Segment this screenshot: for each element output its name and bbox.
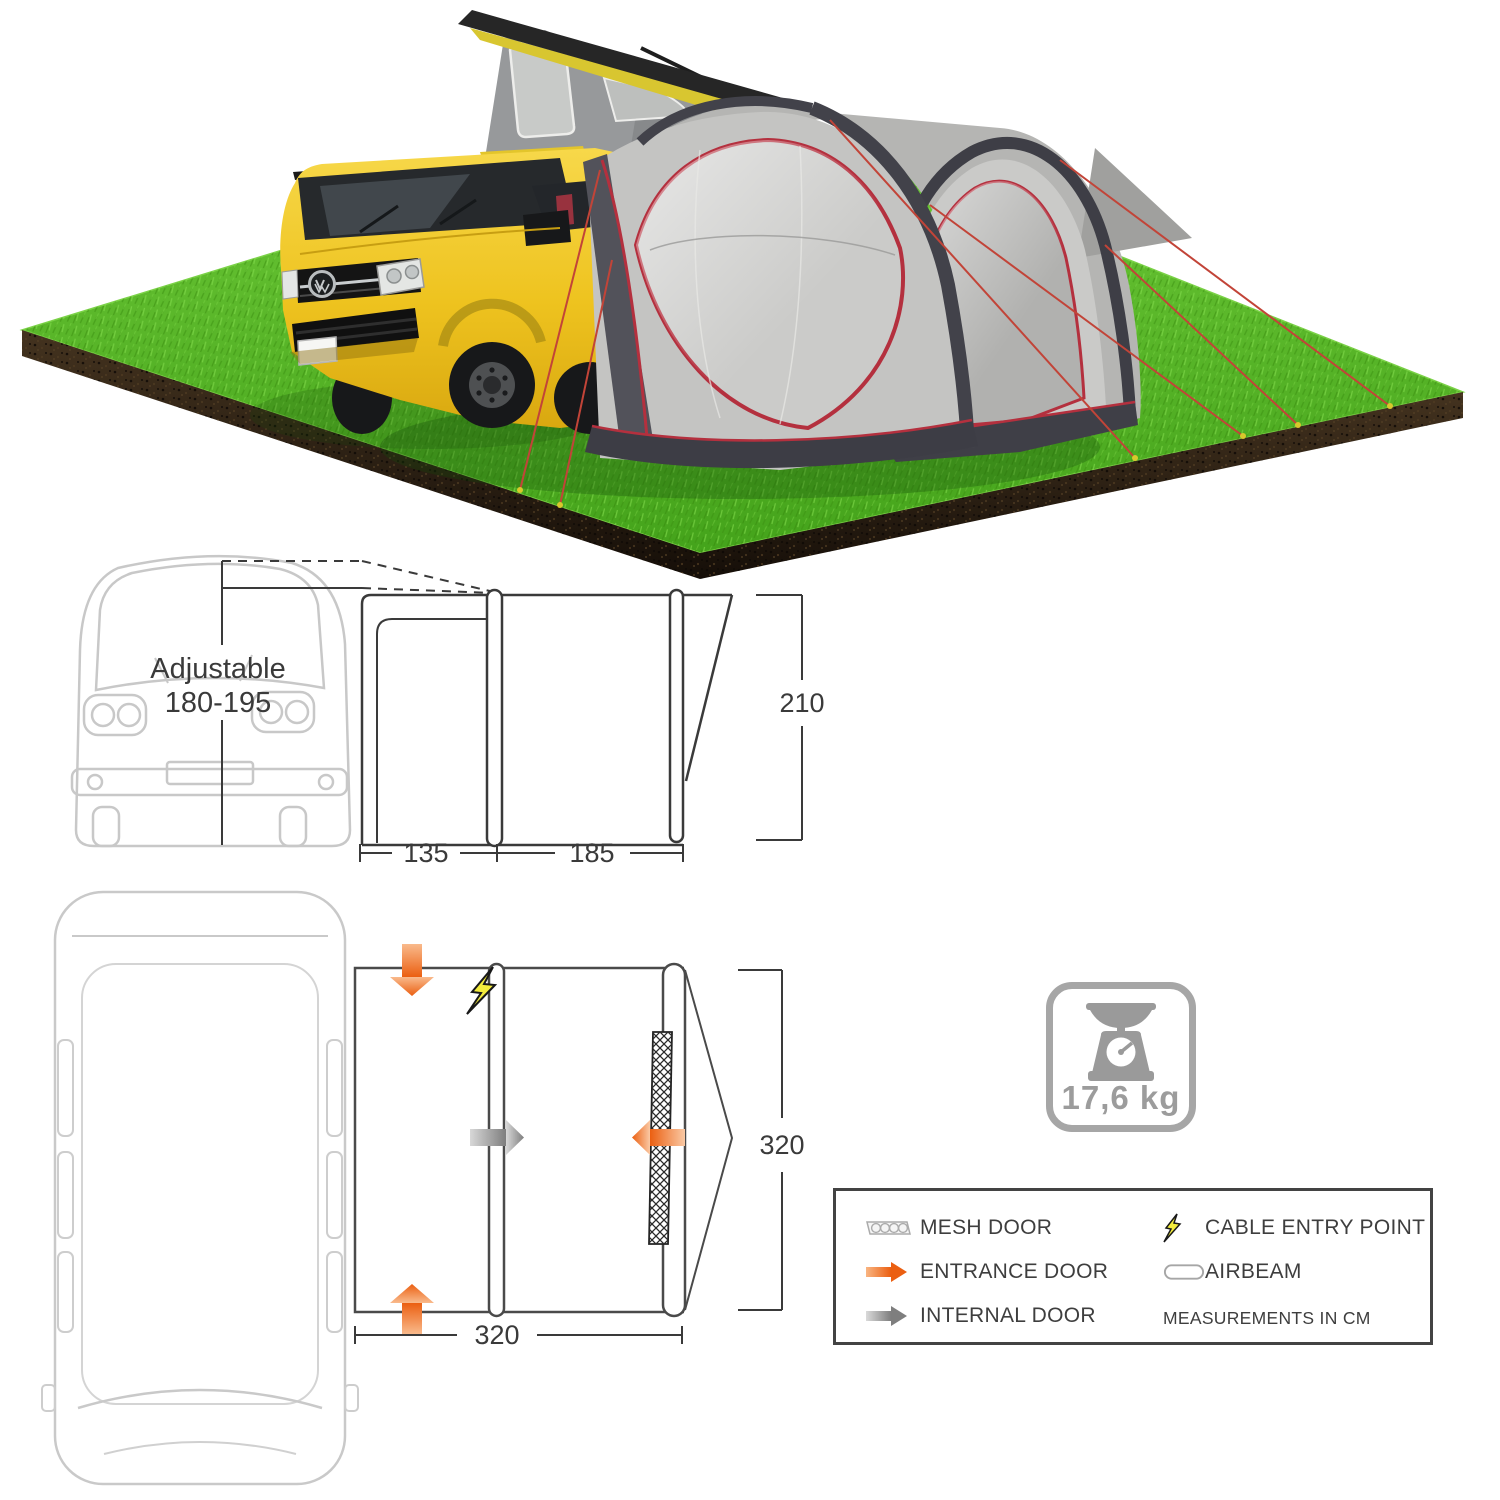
legend-item-cable-entry: CABLE ENTRY POINT — [1163, 1213, 1425, 1243]
airbeam-tube-right — [670, 590, 683, 842]
awning-side-profile — [362, 590, 732, 846]
legend-label: AIRBEAM — [1205, 1260, 1302, 1284]
product-dimension-sheet: Adjustable 180-195 — [0, 0, 1500, 1500]
legend-item-airbeam: AIRBEAM — [1163, 1257, 1302, 1287]
entrance-door-arrow-icon — [864, 1260, 920, 1284]
legend-label: ENTRANCE DOOR — [920, 1260, 1108, 1284]
legend-item-entrance-door: ENTRANCE DOOR — [864, 1257, 1108, 1287]
legend-box: MESH DOOR ENTRANCE DOOR — [833, 1188, 1433, 1345]
internal-door-arrow-icon — [864, 1304, 920, 1328]
side-elevation-diagram: Adjustable 180-195 — [40, 540, 900, 880]
product-photo-illustration — [0, 0, 1500, 600]
kitchen-scale-icon — [1075, 995, 1167, 1083]
weight-value: 17,6 kg — [1053, 1079, 1189, 1117]
legend-label: MESH DOOR — [920, 1216, 1052, 1240]
airbeam-tube-middle — [487, 590, 502, 846]
floor-plan-diagram: 320 320 — [20, 880, 840, 1500]
measurements-note-label: MEASUREMENTS IN CM — [1163, 1308, 1371, 1329]
van-top-outline — [42, 892, 358, 1484]
legend-label: INTERNAL DOOR — [920, 1304, 1096, 1328]
canopy-triangle — [685, 970, 732, 1310]
dim-label-185: 185 — [569, 838, 614, 868]
dim-label-320-width: 320 — [474, 1320, 519, 1350]
mesh-door-icon — [864, 1219, 920, 1237]
headlight-left — [282, 270, 298, 299]
legend-label: CABLE ENTRY POINT — [1205, 1216, 1425, 1240]
dim-label-320-depth: 320 — [759, 1130, 804, 1160]
front-wheel — [449, 342, 535, 428]
awning-footprint — [355, 944, 732, 1334]
weight-badge: 17,6 kg — [1046, 982, 1196, 1132]
airbeam-tube-icon — [1163, 1263, 1205, 1281]
adjustable-label-line2: 180-195 — [165, 687, 271, 719]
dim-label-210: 210 — [779, 688, 824, 718]
legend-item-mesh-door: MESH DOOR — [864, 1213, 1052, 1243]
adjustable-label-line1: Adjustable — [150, 653, 285, 685]
dim-label-135: 135 — [403, 838, 448, 868]
legend-measurements-note: MEASUREMENTS IN CM — [1163, 1303, 1371, 1333]
cable-entry-lightning-icon — [1163, 1213, 1205, 1243]
legend-item-internal-door: INTERNAL DOOR — [864, 1301, 1096, 1331]
